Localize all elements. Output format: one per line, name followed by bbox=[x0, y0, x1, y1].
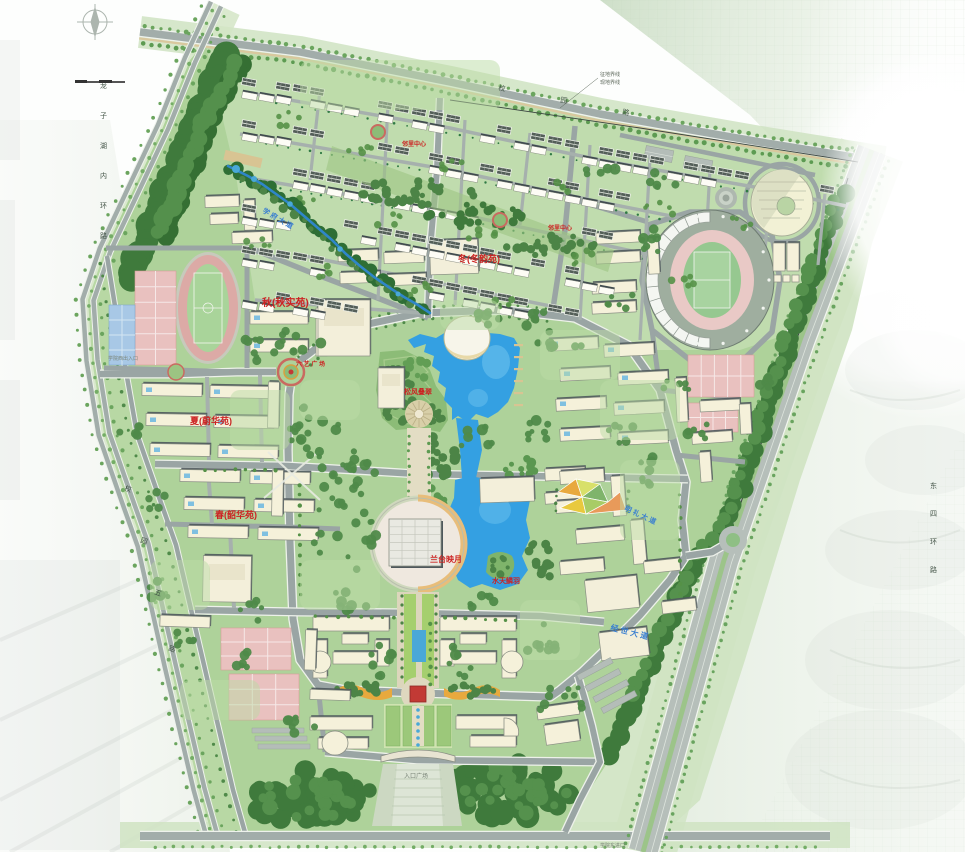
svg-text:冬(冬韵苑): 冬(冬韵苑) bbox=[458, 253, 500, 264]
svg-text:东: 东 bbox=[930, 481, 937, 490]
svg-text:子: 子 bbox=[100, 112, 107, 120]
svg-text:内: 内 bbox=[100, 171, 107, 180]
svg-text:秋(秋实苑): 秋(秋实苑) bbox=[262, 296, 309, 309]
svg-text:四: 四 bbox=[930, 510, 937, 518]
svg-text:征地界线: 征地界线 bbox=[600, 71, 620, 78]
svg-text:现地界线: 现地界线 bbox=[600, 79, 620, 86]
svg-text:路: 路 bbox=[100, 231, 107, 240]
svg-text:环: 环 bbox=[930, 538, 937, 546]
svg-text:学院西出入口: 学院西出入口 bbox=[108, 355, 138, 362]
svg-text:松风叠翠: 松风叠翠 bbox=[404, 387, 432, 396]
svg-text:夏(蔚华苑): 夏(蔚华苑) bbox=[189, 415, 232, 426]
svg-text:学院东进口: 学院东进口 bbox=[600, 842, 625, 849]
svg-text:湖: 湖 bbox=[100, 141, 107, 150]
svg-text:兰台映月: 兰台映月 bbox=[430, 554, 462, 564]
svg-text:入口广场: 入口广场 bbox=[404, 772, 428, 780]
svg-text:邻里中心: 邻里中心 bbox=[402, 140, 426, 148]
svg-text:六 艺 广 场: 六 艺 广 场 bbox=[296, 360, 325, 368]
svg-text:环: 环 bbox=[100, 202, 107, 210]
svg-text:邻里中心: 邻里中心 bbox=[548, 224, 572, 232]
svg-text:园: 园 bbox=[560, 96, 568, 105]
svg-text:水天鳞羽: 水天鳞羽 bbox=[492, 576, 520, 585]
svg-text:路: 路 bbox=[930, 565, 937, 574]
svg-text:春(韶华苑): 春(韶华苑) bbox=[214, 509, 257, 520]
